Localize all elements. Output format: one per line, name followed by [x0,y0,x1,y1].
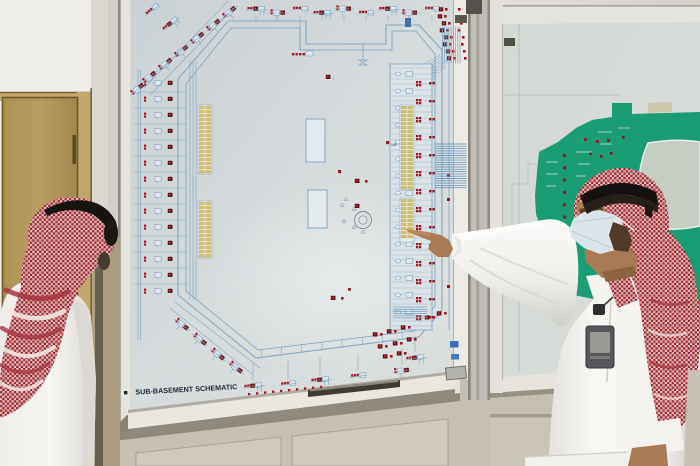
svg-text:t: t [333,77,334,81]
svg-text:14P: 14P [391,143,398,147]
